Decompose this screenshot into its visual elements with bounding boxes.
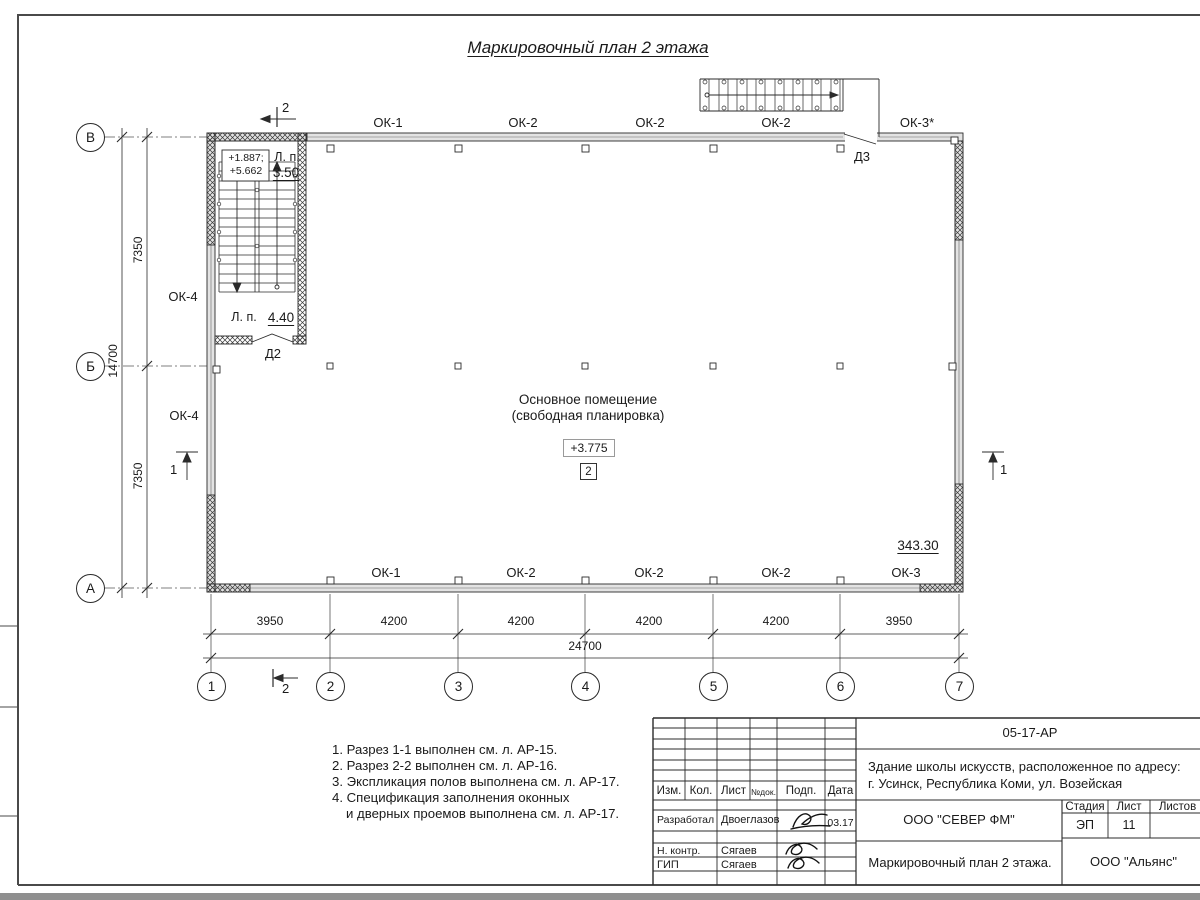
window-label-bottom-1: ОК-1 — [364, 566, 408, 581]
signatures — [786, 814, 830, 869]
signature-ncontrol — [786, 843, 817, 854]
dim-bottom-4: 4200 — [619, 615, 679, 629]
tb-contractor: ООО "Альянс" — [1062, 855, 1200, 870]
tb-name-gip: Сягаев — [721, 859, 757, 872]
dim-bottom-total: 24700 — [555, 640, 615, 654]
axis-col-4: 4 — [571, 672, 600, 701]
dim-left-total: 14700 — [107, 331, 121, 391]
tb-sheets-label: Листов — [1150, 801, 1200, 814]
dim-left-2: 7350 — [132, 446, 146, 506]
axis-col-6: 6 — [826, 672, 855, 701]
door-label-d3: Д3 — [847, 150, 877, 165]
dim-bottom-3: 4200 — [491, 615, 551, 629]
tb-col-podp: Подп. — [777, 785, 825, 798]
axis-row-v: В — [76, 123, 105, 152]
room-elevation-mark: +3.775 — [563, 439, 615, 457]
window-label-top-5: ОК-3* — [892, 116, 942, 131]
tb-role-developer: Разработал — [657, 814, 714, 826]
tb-col-data: Дата — [825, 785, 856, 798]
stair-elevation-line2: +5.662 — [224, 165, 268, 177]
tb-role-ncontrol: Н. контр. — [657, 845, 700, 857]
room-area-value: 343.30 — [893, 538, 943, 554]
note-line-3: 3. Экспликация полов выполнена см. л. АР… — [332, 774, 620, 789]
axis-col-2: 2 — [316, 672, 345, 701]
dim-left-1: 7350 — [132, 220, 146, 280]
tb-sheet-label: Лист — [1108, 801, 1150, 814]
tb-col-list: Лист — [717, 785, 750, 798]
scan-edge-strip — [0, 893, 1200, 900]
signature-developer — [791, 814, 830, 829]
axis-col-3: 3 — [444, 672, 473, 701]
sheet-title: Маркировочный план 2 этажа — [460, 38, 716, 58]
note-line-4: 4. Спецификация заполнения оконных — [332, 790, 569, 805]
window-label-bottom-5: ОК-3 — [884, 566, 928, 581]
tb-drawing-title: Маркировочный план 2 этажа. — [860, 856, 1060, 871]
tb-name-ncontrol: Сягаев — [721, 845, 757, 858]
tb-col-ndok: №док. — [750, 788, 777, 798]
tb-col-kol: Кол. — [685, 785, 717, 798]
tb-role-gip: ГИП — [657, 859, 679, 872]
tb-stage-label: Стадия — [1062, 801, 1108, 814]
door-label-d2: Д2 — [258, 347, 288, 362]
landing-value-top: 3.50 — [269, 165, 303, 181]
landing-label-mid: Л. п. — [226, 310, 262, 324]
window-label-top-2: ОК-2 — [501, 116, 545, 131]
tb-project-line2: г. Усинск, Республика Коми, ул. Возейска… — [868, 777, 1122, 792]
tb-project-line1: Здание школы искусств, расположенное по … — [868, 760, 1181, 775]
tb-col-izm: Изм. — [653, 785, 685, 798]
tb-date-developer: 03.17 — [826, 817, 855, 829]
axis-row-a: А — [76, 574, 105, 603]
window-label-top-4: ОК-2 — [754, 116, 798, 131]
tb-company: ООО "СЕВЕР ФМ" — [856, 813, 1062, 828]
note-line-2: 2. Разрез 2-2 выполнен см. л. АР-16. — [332, 758, 557, 773]
window-label-bottom-3: ОК-2 — [627, 566, 671, 581]
window-label-top-3: ОК-2 — [628, 116, 672, 131]
note-line-1: 1. Разрез 1-1 выполнен см. л. АР-15. — [332, 742, 557, 757]
window-label-top-1: ОК-1 — [366, 116, 410, 131]
section-2-top-label: 2 — [282, 101, 289, 116]
signature-gip — [788, 857, 819, 868]
landing-label-top: Л. п. — [270, 150, 304, 164]
tb-sheet-number: 11 — [1108, 818, 1150, 832]
room-name-line2: (свободная планировка) — [488, 408, 688, 424]
axis-col-1: 1 — [197, 672, 226, 701]
dim-bottom-2: 4200 — [364, 615, 424, 629]
landing-value-mid: 4.40 — [263, 310, 299, 326]
tb-doc-number: 05-17-АР — [880, 726, 1180, 741]
drawing-sheet: Маркировочный план 2 этажа ОК-1 ОК-2 ОК-… — [0, 0, 1200, 900]
window-label-left-1: ОК-4 — [163, 290, 203, 305]
dim-bottom-6: 3950 — [869, 615, 929, 629]
section-2-top — [261, 107, 296, 127]
stair-elevation-line1: +1.887; — [224, 152, 268, 164]
dim-bottom-5: 4200 — [746, 615, 806, 629]
axis-col-5: 5 — [699, 672, 728, 701]
window-label-left-2: ОК-4 — [164, 409, 204, 424]
room-number-box: 2 — [580, 463, 597, 480]
section-2-bottom-label: 2 — [282, 682, 289, 697]
room-name-line1: Основное помещение — [488, 392, 688, 408]
walls — [207, 132, 963, 592]
section-1-left — [176, 452, 198, 480]
note-line-5: и дверных проемов выполнена см. л. АР-17… — [346, 806, 619, 821]
window-label-bottom-4: ОК-2 — [754, 566, 798, 581]
window-label-bottom-2: ОК-2 — [499, 566, 543, 581]
section-1-right-label: 1 — [1000, 463, 1007, 478]
section-1-left-label: 1 — [170, 463, 177, 478]
dim-bottom-1: 3950 — [240, 615, 300, 629]
axis-col-7: 7 — [945, 672, 974, 701]
tb-stage-value: ЭП — [1062, 818, 1108, 832]
tb-name-developer: Двоеглазов — [721, 814, 779, 827]
axis-row-b: Б — [76, 352, 105, 381]
